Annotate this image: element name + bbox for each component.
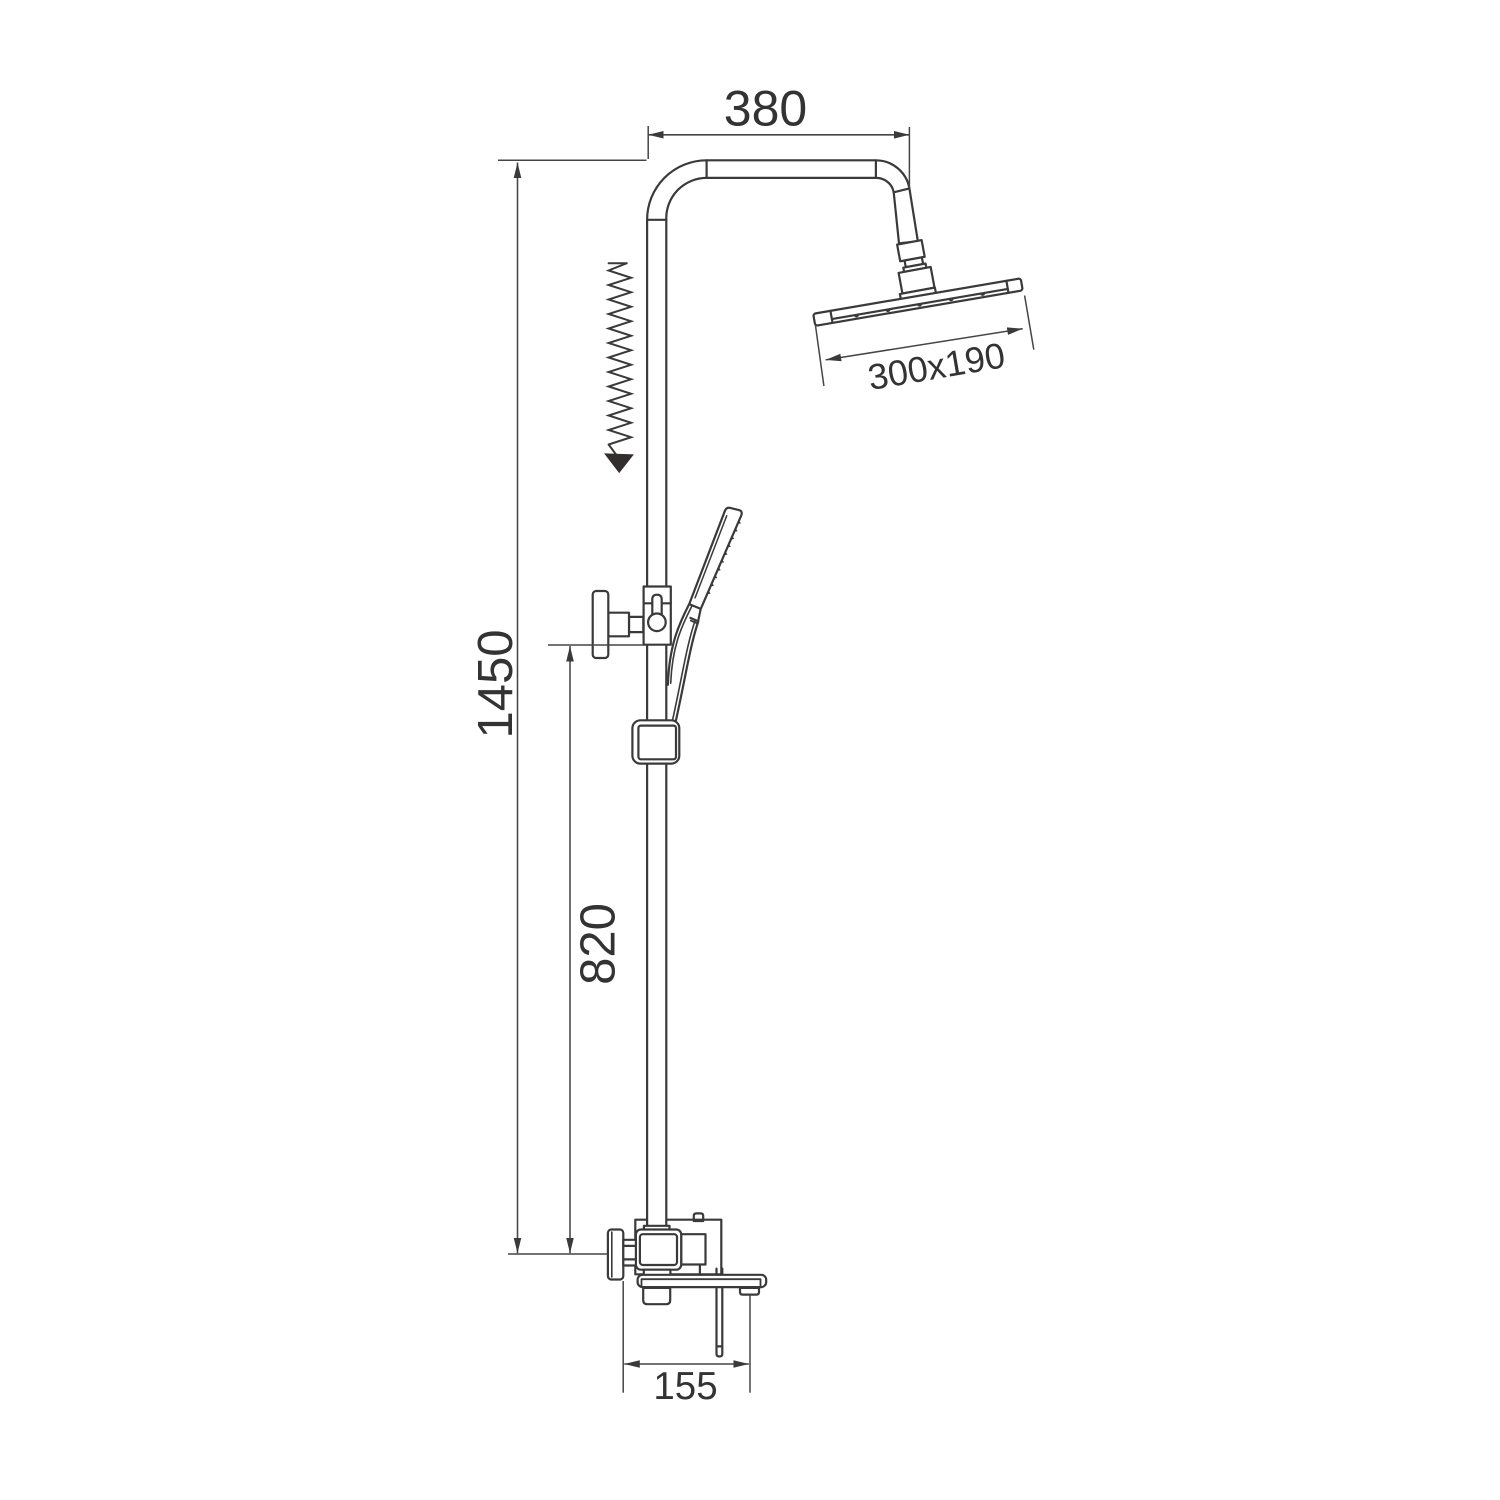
svg-text:155: 155 [653,1365,717,1408]
svg-text:820: 820 [572,903,626,985]
svg-text:1450: 1450 [469,629,523,738]
svg-text:380: 380 [724,81,807,137]
